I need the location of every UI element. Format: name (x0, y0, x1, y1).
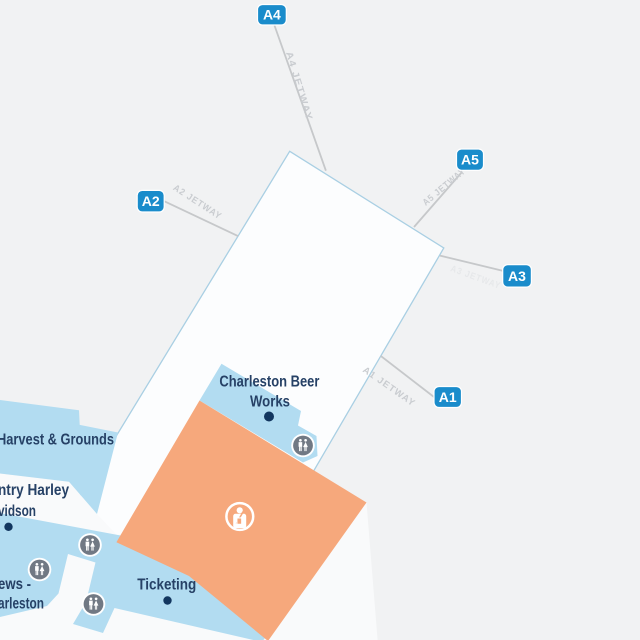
svg-text:A2: A2 (142, 193, 160, 209)
svg-text:A3: A3 (508, 268, 526, 284)
svg-text:Harvest & Grounds: Harvest & Grounds (0, 432, 114, 449)
svg-text:A5: A5 (461, 152, 479, 168)
svg-text:A1: A1 (439, 389, 457, 405)
svg-text:ews -: ews - (0, 576, 31, 593)
svg-text:A4: A4 (263, 7, 281, 23)
svg-text:ntry Harley: ntry Harley (0, 482, 69, 499)
svg-text:Charleston Beer: Charleston Beer (219, 374, 319, 391)
svg-text:vidson: vidson (0, 503, 36, 520)
svg-text:Ticketing: Ticketing (137, 577, 196, 594)
svg-text:Works: Works (250, 394, 290, 411)
svg-text:arleston: arleston (0, 596, 44, 613)
